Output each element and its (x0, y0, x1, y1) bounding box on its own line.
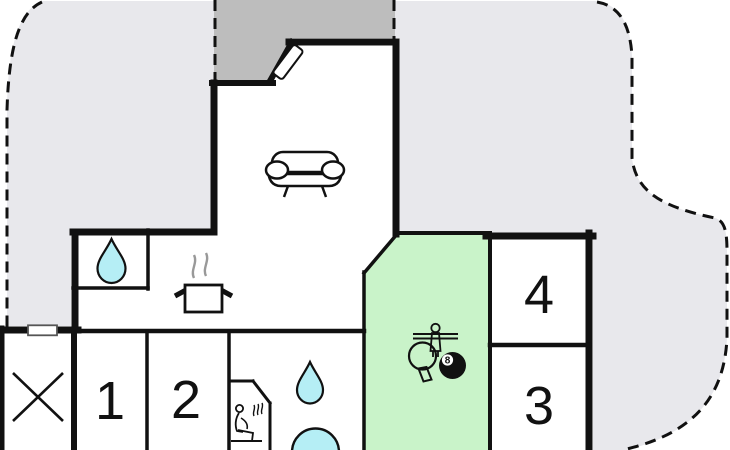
floor-plan: 8 1 2 4 3 (0, 0, 730, 450)
room-number-4: 4 (524, 265, 554, 325)
pot-body (185, 285, 222, 312)
floor-plan-canvas: 8 1 2 4 3 (0, 0, 730, 450)
room-number-2: 2 (171, 370, 201, 430)
billiards-icon: 8 (439, 352, 466, 379)
room-number-1: 1 (95, 371, 125, 431)
game-room-floor (364, 233, 490, 450)
billiard-ball-number: 8 (445, 356, 451, 367)
room-number-3: 3 (524, 376, 554, 436)
window-marker (28, 325, 57, 335)
